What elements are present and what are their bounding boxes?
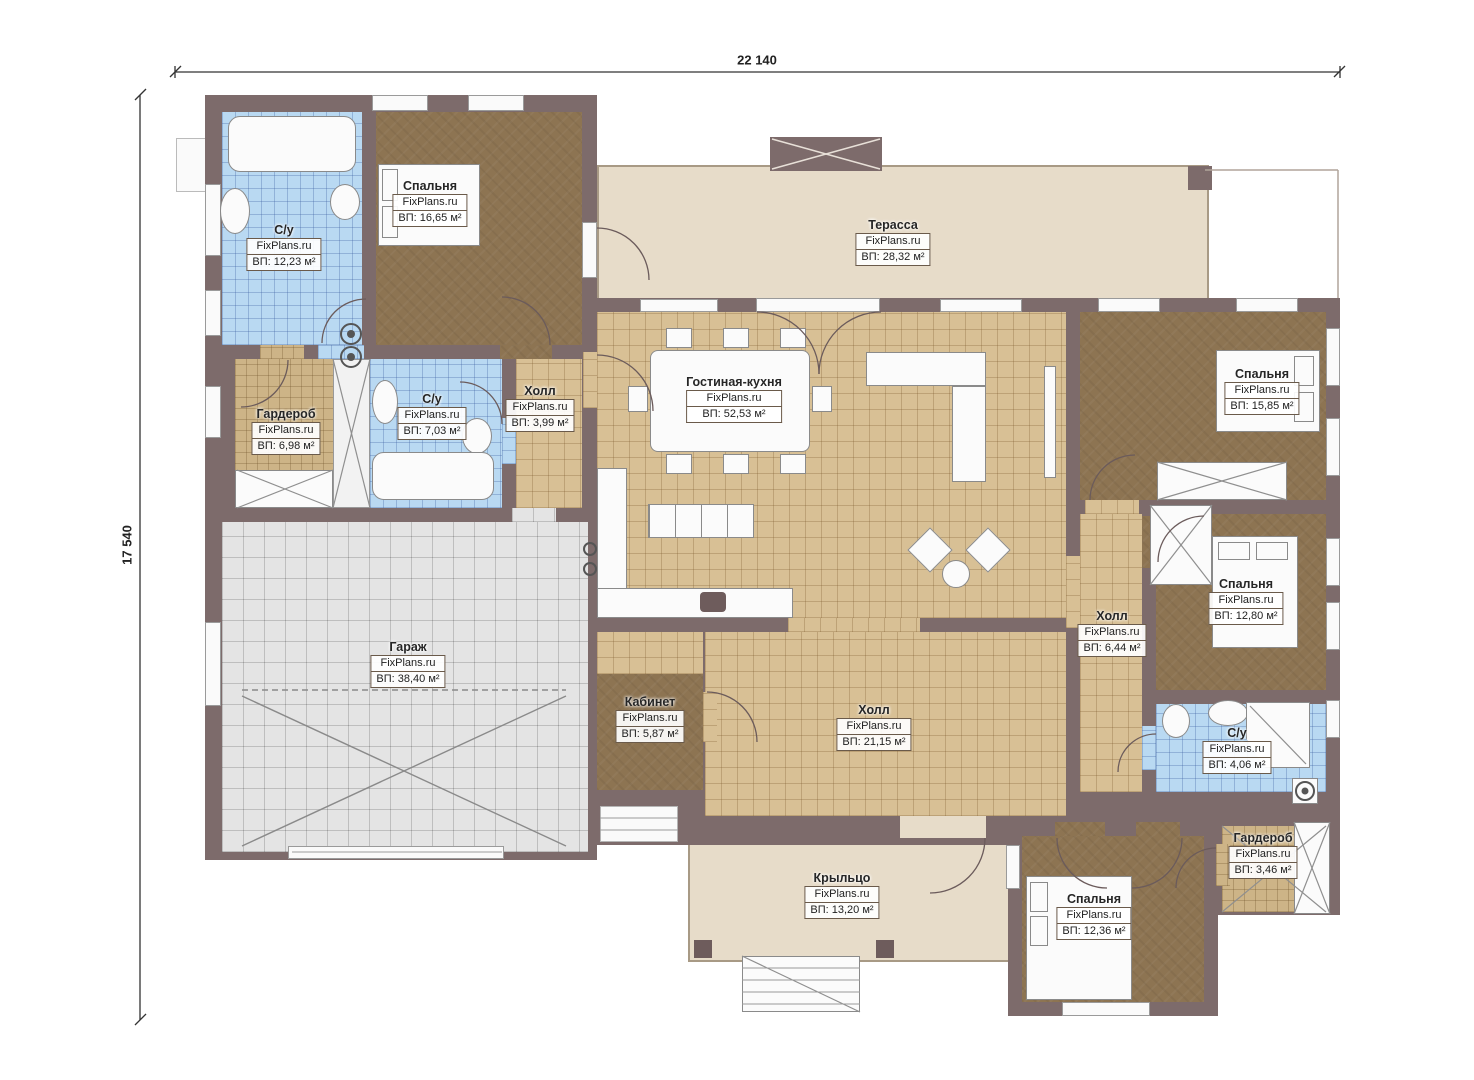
room-area: ВП: 5,87 м² <box>615 727 684 743</box>
terrace-door-bedroom-1 <box>582 222 597 278</box>
porch-post-right <box>876 940 894 958</box>
window <box>1098 298 1160 312</box>
room-name: С/у <box>1202 726 1271 740</box>
room-label-wardrobe-1: Гардероб FixPlans.ru ВП: 6,98 м² <box>251 407 320 455</box>
window <box>372 95 428 111</box>
room-label-living: Гостиная-кухня FixPlans.ru ВП: 52,53 м² <box>686 375 782 423</box>
room-label-bedroom-4: Спальня FixPlans.ru ВП: 12,36 м² <box>1056 892 1131 940</box>
window <box>205 184 221 256</box>
chair <box>723 454 749 474</box>
window <box>1326 418 1340 476</box>
door-gap-bedroom-4-b <box>1136 822 1180 836</box>
window <box>1236 298 1298 312</box>
window <box>205 622 221 706</box>
wardrobe-unit <box>235 470 333 508</box>
room-label-bathroom-2: С/у FixPlans.ru ВП: 7,03 м² <box>397 392 466 440</box>
room-area: ВП: 52,53 м² <box>686 407 782 423</box>
room-area: ВП: 12,23 м² <box>246 255 321 271</box>
pillow <box>1030 882 1048 912</box>
door-gap-bathroom-3 <box>1142 726 1156 770</box>
room-label-bathroom-3: С/у FixPlans.ru ВП: 4,06 м² <box>1202 726 1271 774</box>
door-gap-bedroom-1 <box>500 345 552 359</box>
opening-living-hall2 <box>788 618 920 632</box>
chair <box>812 386 832 412</box>
coffee-table <box>942 560 970 588</box>
chair <box>666 454 692 474</box>
roof-overhang-lines <box>1205 170 1338 298</box>
pillow <box>1030 916 1048 946</box>
door-gap-porch <box>900 816 986 838</box>
entry-step <box>176 138 206 192</box>
window <box>1326 538 1340 586</box>
washing-machine <box>1292 778 1318 804</box>
door-gap-hall1-living <box>583 352 597 408</box>
sofa <box>866 352 986 386</box>
floor-plan-canvas: 22 140 17 540 С/у FixPlans.ru ВП: 12,23 … <box>0 0 1474 1080</box>
door-gap-wardrobe-1 <box>260 345 304 359</box>
porch-post-left <box>694 940 712 958</box>
room-name: Кабинет <box>615 695 684 709</box>
toilet <box>330 184 360 220</box>
watermark: FixPlans.ru <box>686 390 782 407</box>
window <box>1326 700 1340 738</box>
window <box>1062 1002 1150 1016</box>
room-name: Гараж <box>370 640 445 654</box>
room-name: Холл <box>1077 609 1146 623</box>
room-name: С/у <box>397 392 466 406</box>
watermark: FixPlans.ru <box>855 233 930 250</box>
room-label-hall-2: Холл FixPlans.ru ВП: 21,15 м² <box>836 703 911 751</box>
room-label-terrace: Терасса FixPlans.ru ВП: 28,32 м² <box>855 218 930 266</box>
room-name: Гостиная-кухня <box>686 375 782 389</box>
room-area: ВП: 21,15 м² <box>836 735 911 751</box>
room-area: ВП: 15,85 м² <box>1224 399 1299 415</box>
door-gap-bathroom-1 <box>318 345 364 359</box>
kitchen-island <box>648 504 754 538</box>
toilet <box>1162 704 1190 738</box>
room-area: ВП: 13,20 м² <box>804 903 879 919</box>
room-area: ВП: 3,46 м² <box>1228 863 1297 879</box>
tv-console <box>1044 366 1056 478</box>
room-name: Крыльцо <box>804 871 879 885</box>
watermark: FixPlans.ru <box>1224 382 1299 399</box>
room-name: Гардероб <box>251 407 320 421</box>
watermark: FixPlans.ru <box>804 886 879 903</box>
watermark: FixPlans.ru <box>397 407 466 424</box>
room-area: ВП: 28,32 м² <box>855 250 930 266</box>
window <box>1006 845 1020 889</box>
watermark: FixPlans.ru <box>1077 624 1146 641</box>
chair <box>723 328 749 348</box>
room-name: С/у <box>246 223 321 237</box>
room-area: ВП: 12,80 м² <box>1208 609 1283 625</box>
pillow <box>1256 542 1288 560</box>
porch-steps <box>742 956 860 1012</box>
room-label-hall-1: Холл FixPlans.ru ВП: 3,99 м² <box>505 384 574 432</box>
wardrobe-unit <box>1150 505 1212 585</box>
sofa <box>952 386 986 482</box>
room-label-garage: Гараж FixPlans.ru ВП: 38,40 м² <box>370 640 445 688</box>
kitchen-sink <box>700 592 726 612</box>
door-gap-bedroom-2 <box>1085 500 1139 514</box>
wardrobe-unit <box>1157 462 1287 500</box>
room-area: ВП: 16,65 м² <box>392 211 467 227</box>
room-label-wardrobe-2: Гардероб FixPlans.ru ВП: 3,46 м² <box>1228 831 1297 879</box>
room-area: ВП: 38,40 м² <box>370 672 445 688</box>
room-name: Спальня <box>1056 892 1131 906</box>
room-name: Гардероб <box>1228 831 1297 845</box>
window <box>205 290 221 336</box>
watermark: FixPlans.ru <box>505 399 574 416</box>
room-area: ВП: 6,98 м² <box>251 439 320 455</box>
chair <box>628 386 648 412</box>
watermark: FixPlans.ru <box>370 655 445 672</box>
room-area: ВП: 12,36 м² <box>1056 924 1131 940</box>
room-name: Спальня <box>1208 577 1283 591</box>
room-label-bedroom-2: Спальня FixPlans.ru ВП: 15,85 м² <box>1224 367 1299 415</box>
room-name: Терасса <box>855 218 930 232</box>
watermark: FixPlans.ru <box>251 422 320 439</box>
dimension-width: 22 140 <box>737 53 777 68</box>
pillow <box>1218 542 1250 560</box>
chimney-block <box>770 137 882 171</box>
bathtub <box>228 116 356 172</box>
chair <box>780 328 806 348</box>
bathtub <box>372 452 494 500</box>
chair <box>780 454 806 474</box>
room-name: Холл <box>505 384 574 398</box>
window <box>1326 602 1340 650</box>
window <box>468 95 524 111</box>
room-label-hall-3: Холл FixPlans.ru ВП: 6,44 м² <box>1077 609 1146 657</box>
sink <box>372 380 398 424</box>
kitchen-counter <box>597 588 793 618</box>
room-area: ВП: 4,06 м² <box>1202 758 1271 774</box>
wardrobe-unit <box>1294 822 1330 914</box>
door-gap-bedroom-4-a <box>1055 822 1105 836</box>
terrace-post <box>1188 166 1212 190</box>
watermark: FixPlans.ru <box>1202 741 1271 758</box>
watermark: FixPlans.ru <box>1056 907 1131 924</box>
room-area: ВП: 3,99 м² <box>505 416 574 432</box>
room-label-porch: Крыльцо FixPlans.ru ВП: 13,20 м² <box>804 871 879 919</box>
room-label-office: Кабинет FixPlans.ru ВП: 5,87 м² <box>615 695 684 743</box>
room-area: ВП: 7,03 м² <box>397 424 466 440</box>
room-label-bedroom-3: Спальня FixPlans.ru ВП: 12,80 м² <box>1208 577 1283 625</box>
window <box>1326 328 1340 386</box>
room-name: Холл <box>836 703 911 717</box>
watermark: FixPlans.ru <box>1228 846 1297 863</box>
watermark: FixPlans.ru <box>246 238 321 255</box>
room-label-bedroom-1: Спальня FixPlans.ru ВП: 16,65 м² <box>392 179 467 227</box>
watermark: FixPlans.ru <box>392 194 467 211</box>
window <box>205 386 221 438</box>
room-label-bathroom-1: С/у FixPlans.ru ВП: 12,23 м² <box>246 223 321 271</box>
floor-hall-1 <box>516 359 582 508</box>
window <box>940 299 1022 312</box>
room-name: Спальня <box>392 179 467 193</box>
floor-hall-2-west <box>597 632 703 674</box>
sink <box>1208 700 1248 726</box>
watermark: FixPlans.ru <box>615 710 684 727</box>
room-area: ВП: 6,44 м² <box>1077 641 1146 657</box>
side-steps <box>600 806 678 842</box>
watermark: FixPlans.ru <box>836 718 911 735</box>
garage-gate <box>288 846 504 859</box>
dimension-height: 17 540 <box>120 525 135 565</box>
door-gap-garage <box>512 508 556 522</box>
closet-shaft <box>333 359 370 508</box>
room-name: Спальня <box>1224 367 1299 381</box>
window <box>640 299 718 312</box>
watermark: FixPlans.ru <box>1208 592 1283 609</box>
chair <box>666 328 692 348</box>
door-gap-office <box>703 692 717 742</box>
terrace-door-living <box>756 298 880 312</box>
